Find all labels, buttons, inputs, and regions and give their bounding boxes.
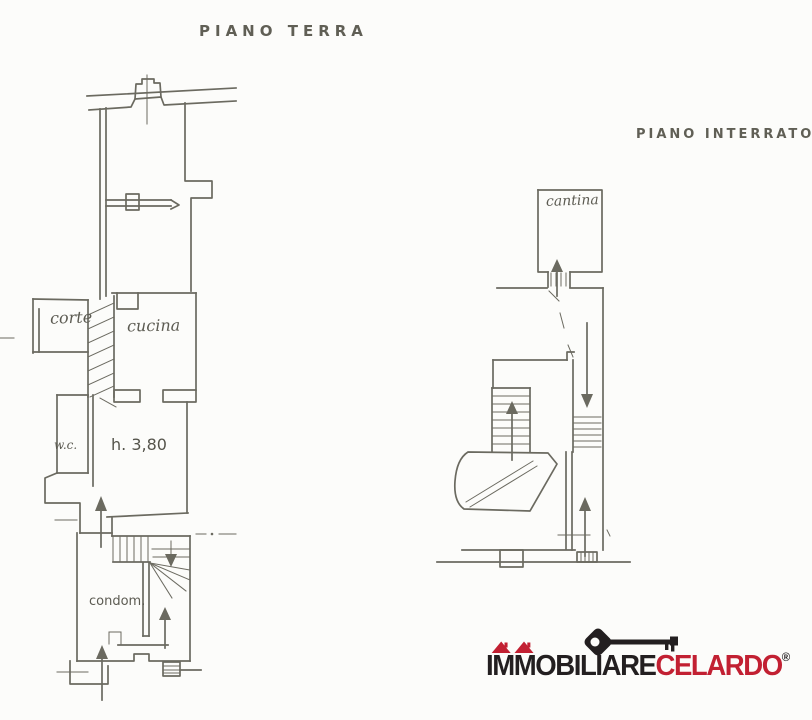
basement-title: PIANO INTERRATO [636,127,812,142]
room-label-corte: corte [50,307,93,327]
basement-plan [437,190,630,567]
floor-plan-scan-page: PIANO TERRA PIANO INTERRATO corte cucina… [0,0,812,720]
gf-step-grate [163,662,201,676]
room-height-label: h. 3,80 [111,435,167,454]
gf-entrance-arrow-icon [95,496,107,547]
gf-stairs-up-arrow-icon [159,607,171,648]
room-label-cucina: cucina [127,316,181,336]
agency-logo: IMMOBILIARECELARDO® [486,620,808,690]
bm-stairs-down-arrow-icon [581,323,593,408]
bm-stairs-up-arrow-icon [506,401,518,460]
gf-stairs-down-arrow-icon [165,541,177,567]
ground-floor-title: PIANO TERRA [199,22,368,40]
bm-corridor-up-arrow-icon [579,497,591,556]
logo-word-celardo: CELARDO [656,650,782,682]
house-roofs-icon [491,640,539,654]
agency-logo-text: IMMOBILIARECELARDO® [486,650,790,683]
bm-threshold-grate [577,552,597,562]
room-label-wc: w.c. [54,438,77,452]
floor-plan-drawing [0,0,812,720]
room-label-cantina: cantina [546,192,599,210]
bm-staircase-up [492,388,530,452]
bm-ramp-outline [455,452,557,511]
registered-trademark-symbol: ® [782,650,790,664]
logo-word-immobiliare: IMMOBILIARE [486,650,656,682]
room-label-condominio: condom. [89,594,145,609]
gf-street-entrance-arrow-icon [96,645,108,700]
